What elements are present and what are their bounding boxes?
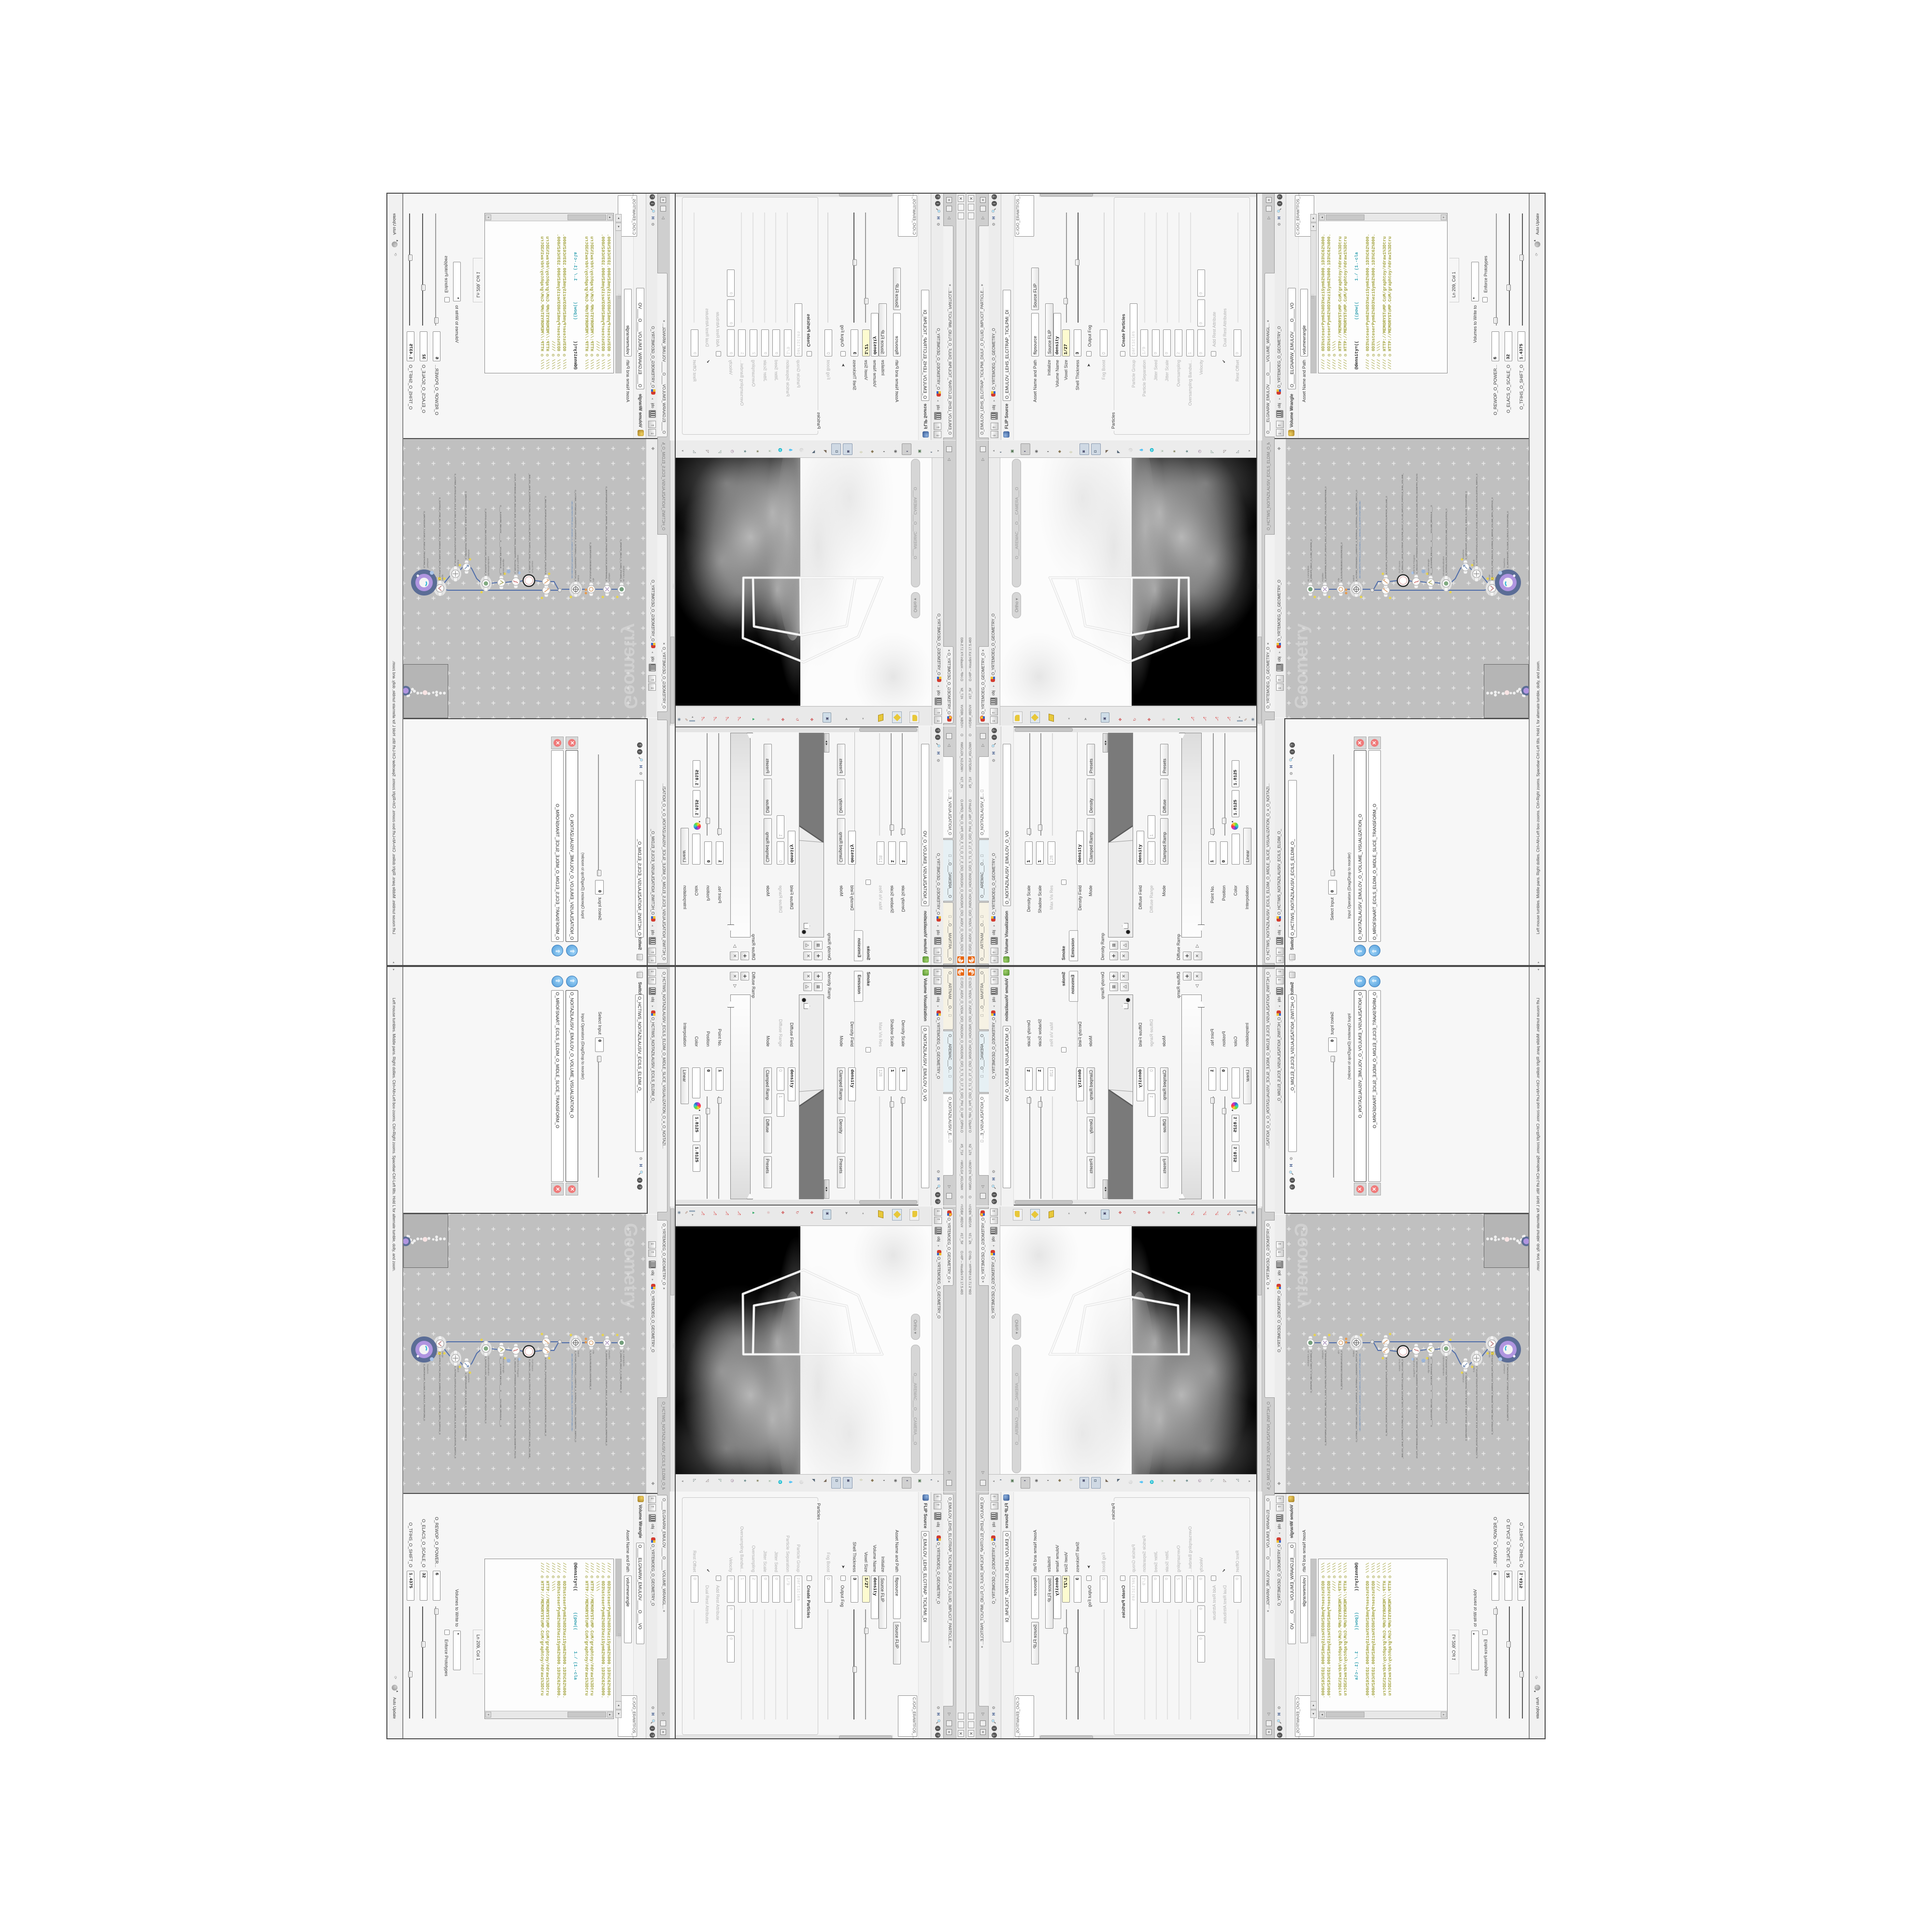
svg-text:O_EMULOV_LEHS_ELCITRAP_TICILPM: O_EMULOV_LEHS_ELCITRAP_TICILPMI_DIULF_O_… [1401, 473, 1404, 573]
svg-text:Geometry: Geometry [620, 624, 640, 709]
svg-text:O_HCTIWS_NOITAZILAUSIV_ECILS_E: O_HCTIWS_NOITAZILAUSIV_ECILS_ELDIM_O_MID… [1476, 473, 1478, 566]
svg-text:O____ELGNARW_EMULOV____O______: O____ELGNARW_EMULOV____O______VOLUME_WRA… [499, 505, 502, 575]
svg-text:an_CubeSphere: an_CubeSphere [1307, 566, 1309, 582]
svg-text:O_MROFSNART_TLUSER_O_RESULT_TR: O_MROFSNART_TLUSER_O_RESULT_TRANSFORM_O [423, 1364, 426, 1421]
svg-text:O_EMARFERIW_NOGYLOP_EREHPS_EBU: O_EMARFERIW_NOGYLOP_EREHPS_EBUC_O_CUBE_S… [605, 1350, 608, 1446]
svg-text:O_N,DUSLRBUBGBO,GENURBO(B)_O: O_N,DUSLRBUBGBO,GENURBO(B)_O [1340, 542, 1343, 582]
svg-text:Transform: Transform [426, 1364, 429, 1374]
svg-text:O_EREHPS_EBUC_O_CUBE_SPHERE_O: O_EREHPS_EBUC_O_CUBE_SPHERE_O [620, 1350, 622, 1393]
svg-text:Volume Wrangle: Volume Wrangle [502, 1357, 505, 1373]
svg-text:O_EMARFERIW_NOGYLOP_EREHPS_EBU: O_EMARFERIW_NOGYLOP_EREHPS_EBUC_O_CUBE_S… [1324, 486, 1327, 582]
svg-text:Geometry: Geometry [620, 1223, 640, 1308]
svg-text:Transform: Transform [468, 1373, 470, 1383]
svg-text:Geometry: Geometry [1292, 1223, 1312, 1308]
svg-text:O_EREHPS_EBUC_O_CUBE_SPHERE_O: O_EREHPS_EBUC_O_CUBE_SPHERE_O [1310, 539, 1312, 582]
svg-text:O_EMULOV_LEHS_ELCITRAP_TICILPM: O_EMULOV_LEHS_ELCITRAP_TICILPMI_DIULF_O_… [528, 473, 531, 573]
svg-text:Switch: Switch [577, 1350, 580, 1357]
svg-text:O_MROFSNART_ECILS_ELDIM_O_MIDL: O_MROFSNART_ECILS_ELDIM_O_MIDLE_SLICE_TR… [1465, 491, 1467, 559]
svg-text:O_E..BUDLFOKUEFIL_PUFFIN(GEO)D: O_E..BUDLFOKUEFIL_PUFFIN(GEO)DFEGEID(IG)… [1385, 496, 1388, 583]
svg-text:O_SNOGILOP_YRTEMOEG_MORF_EMULO: O_SNOGILOP_YRTEMOEG_MORF_EMULOV_BDV_O_VD… [514, 473, 516, 574]
svg-text:Merge: Merge [441, 1351, 444, 1358]
svg-text:File: File [592, 1350, 595, 1354]
svg-text:O_NOITAZILAUSIV_EMULOV_O/CO(VO: O_NOITAZILAUSIV_EMULOV_O/CO(VOLUME_VIS)U… [484, 1356, 487, 1423]
svg-text:O_HCTIWS_YRTEMOEG_LANRETXE_O_I: O_HCTIWS_YRTEMOEG_LANRETXE_O_INTERNAL_EX… [574, 490, 577, 582]
svg-text:O_NOITAZILAUSIV_EMULOV_O/CO(VO: O_NOITAZILAUSIV_EMULOV_O/CO(VOLUME_VIS)U… [1445, 1356, 1448, 1423]
svg-text:O_ECAFRUS_HTIW_EMULOV_EGREM_O_: O_ECAFRUS_HTIW_EMULOV_EGREM_O_MERGE_VOLU… [1491, 1351, 1493, 1435]
svg-text:Transform: Transform [426, 558, 429, 568]
svg-text:Geometry: Geometry [1292, 624, 1312, 709]
svg-text:FLIP Source: FLIP Source [531, 1359, 534, 1371]
svg-text:Transform: Transform [468, 549, 470, 559]
svg-text:an_CubeSphere: an_CubeSphere [1307, 1350, 1309, 1366]
svg-text:O_SNOGILOP_YRTEMOEG_MORF_EMULO: O_SNOGILOP_YRTEMOEG_MORF_EMULOV_BDV_O_VD… [1416, 473, 1418, 574]
svg-text:VolumeVisualization: VolumeVisualization [1442, 1356, 1445, 1376]
svg-text:O_N,DUSLRBUBGBO,GENURBO(B)_O: O_N,DUSLRBUBGBO,GENURBO(B)_O [1340, 1350, 1343, 1390]
svg-text:Volume Wrangle: Volume Wrangle [1427, 559, 1430, 575]
svg-text:FLIP Source: FLIP Source [1398, 1359, 1401, 1371]
svg-text:JBO.M03,PETS,TRPOLS.O_5SUNEG_O: JBO.M03,PETS,TRPOLS.O_5SUNEG_O_GENUS5_O.… [571, 1353, 573, 1431]
svg-text:O_SNOGILOP_YRTEMOEG_MORF_EMULO: O_SNOGILOP_YRTEMOEG_MORF_EMULOV_BDV_O_VD… [1416, 1358, 1418, 1459]
svg-text:O_ECAFRUS_HTIW_EMULOV_EGREM_O_: O_ECAFRUS_HTIW_EMULOV_EGREM_O_MERGE_VOLU… [439, 497, 441, 581]
svg-text:O_HCTIWS_YRTEMOEG_LANRETXE_O_I: O_HCTIWS_YRTEMOEG_LANRETXE_O_INTERNAL_EX… [1355, 1350, 1358, 1442]
svg-text:VDB from Polygons: VDB from Polygons [1413, 554, 1415, 574]
svg-text:O_EMULOV_LEHS_ELCITRAP_TICILPM: O_EMULOV_LEHS_ELCITRAP_TICILPMI_DIULF_O_… [528, 1359, 531, 1459]
svg-text:Switch: Switch [1352, 575, 1355, 582]
svg-text:PolyWire: PolyWire [1321, 1350, 1324, 1359]
svg-text:O_EMARFERIW_NOGYLOP_EREHPS_EBU: O_EMARFERIW_NOGYLOP_EREHPS_EBUC_O_CUBE_S… [1324, 1350, 1327, 1446]
svg-text:PolyWire: PolyWire [1321, 573, 1324, 582]
svg-text:Switch: Switch [457, 1366, 459, 1373]
svg-text:File: File [1337, 578, 1340, 582]
svg-text:Switch: Switch [1352, 1350, 1355, 1357]
svg-text:Volume Wrangle: Volume Wrangle [1427, 1357, 1430, 1373]
svg-text:VDB from Polygons: VDB from Polygons [1413, 1358, 1415, 1378]
svg-text:O_MROFSNART_TLUSER_O_RESULT_TR: O_MROFSNART_TLUSER_O_RESULT_TRANSFORM_O [1506, 511, 1509, 568]
svg-text:O_SNOGILOP_YRTEMOEG_MORF_EMULO: O_SNOGILOP_YRTEMOEG_MORF_EMULOV_BDV_O_VD… [514, 1358, 516, 1459]
svg-text:VolumeVisualization: VolumeVisualization [1442, 556, 1445, 576]
svg-text:VolumeVisualization: VolumeVisualization [487, 556, 490, 576]
svg-text:O_HCTIWS_NOITAZILAUSIV_ECILS_E: O_HCTIWS_NOITAZILAUSIV_ECILS_ELDIM_O_MID… [454, 473, 456, 566]
svg-text:O____ELGNARW_EMULOV____O______: O____ELGNARW_EMULOV____O______VOLUME_WRA… [1430, 505, 1433, 575]
svg-text:O_MROFSNART_TLUSER_O_RESULT_TR: O_MROFSNART_TLUSER_O_RESULT_TRANSFORM_O [1506, 1364, 1509, 1421]
svg-text:JBO.M03,PETS,TRPOLS.O_5SUNEG_O: JBO.M03,PETS,TRPOLS.O_5SUNEG_O_GENUS5_O.… [1359, 501, 1361, 579]
svg-text:O____ELGNARW_EMULOV____O______: O____ELGNARW_EMULOV____O______VOLUME_WRA… [1430, 1357, 1433, 1427]
svg-text:Merge: Merge [1488, 574, 1491, 581]
svg-text:O_NOITAZILAUSIV_EMULOV_O/CO(VO: O_NOITAZILAUSIV_EMULOV_O/CO(VOLUME_VIS)U… [1445, 509, 1448, 576]
svg-text:O_EREHPS_EBUC_O_CUBE_SPHERE_O: O_EREHPS_EBUC_O_CUBE_SPHERE_O [1310, 1350, 1312, 1393]
svg-text:PolyWire: PolyWire [608, 573, 611, 582]
svg-text:JBO.M03,PETS,TRPOLS.O_5SUNEG_O: JBO.M03,PETS,TRPOLS.O_5SUNEG_O_GENUS5_O.… [571, 501, 573, 579]
svg-text:O_HCTIWS_NOITAZILAUSIV_ECILS_E: O_HCTIWS_NOITAZILAUSIV_ECILS_ELDIM_O_MID… [454, 1366, 456, 1459]
svg-text:Switch: Switch [457, 559, 459, 566]
svg-text:O_HCTIWS_NOITAZILAUSIV_ECILS_E: O_HCTIWS_NOITAZILAUSIV_ECILS_ELDIM_O_MID… [1476, 1366, 1478, 1459]
svg-text:O_NOITAZILAUSIV_EMULOV_O/CO(VO: O_NOITAZILAUSIV_EMULOV_O/CO(VOLUME_VIS)U… [484, 509, 487, 576]
svg-text:O_EREHPS_EBUC_O_CUBE_SPHERE_O: O_EREHPS_EBUC_O_CUBE_SPHERE_O [620, 539, 622, 582]
svg-text:Transform: Transform [1462, 549, 1464, 559]
svg-text:Switch: Switch [1473, 1366, 1475, 1373]
svg-text:Merge: Merge [1488, 1351, 1491, 1358]
svg-text:an_CubeSphere: an_CubeSphere [623, 566, 625, 582]
svg-text:O_MROFSNART_ECILS_ELDIM_O_MIDL: O_MROFSNART_ECILS_ELDIM_O_MIDLE_SLICE_TR… [465, 1373, 467, 1441]
svg-text:Transform: Transform [1503, 1364, 1506, 1374]
svg-text:File: File [592, 578, 595, 582]
svg-text:O____ELGNARW_EMULOV____O______: O____ELGNARW_EMULOV____O______VOLUME_WRA… [499, 1357, 502, 1427]
svg-text:O_ECAFRUS_HTIW_EMULOV_EGREM_O_: O_ECAFRUS_HTIW_EMULOV_EGREM_O_MERGE_VOLU… [439, 1351, 441, 1435]
svg-text:O_HCTIWS_YRTEMOEG_LANRETXE_O_I: O_HCTIWS_YRTEMOEG_LANRETXE_O_INTERNAL_EX… [574, 1350, 577, 1442]
svg-text:VDB from Polygons: VDB from Polygons [517, 1358, 519, 1378]
svg-text:O_N,DUSLRBUBGBO,GENURBO(B)_O: O_N,DUSLRBUBGBO,GENURBO(B)_O [589, 542, 592, 582]
svg-text:O_E..BUDLFOKUEFIL_PUFFIN(GEO)D: O_E..BUDLFOKUEFIL_PUFFIN(GEO)DFEGEID(IG)… [544, 1349, 547, 1436]
svg-text:O_ECAFRUS_HTIW_EMULOV_EGREM_O_: O_ECAFRUS_HTIW_EMULOV_EGREM_O_MERGE_VOLU… [1491, 497, 1493, 581]
svg-text:Volume Wrangle: Volume Wrangle [502, 559, 505, 575]
svg-text:Transform: Transform [1462, 1373, 1464, 1383]
svg-text:Switch: Switch [577, 575, 580, 582]
svg-text:O_MROFSNART_ECILS_ELDIM_O_MIDL: O_MROFSNART_ECILS_ELDIM_O_MIDLE_SLICE_TR… [1465, 1373, 1467, 1441]
svg-text:Switch: Switch [1473, 559, 1475, 566]
svg-text:an_CubeSphere: an_CubeSphere [623, 1350, 625, 1366]
svg-text:FLIP Source: FLIP Source [1398, 561, 1401, 573]
svg-text:O_E..BUDLFOKUEFIL_PUFFIN(GEO)D: O_E..BUDLFOKUEFIL_PUFFIN(GEO)DFEGEID(IG)… [544, 496, 547, 583]
svg-text:O_MROFSNART_ECILS_ELDIM_O_MIDL: O_MROFSNART_ECILS_ELDIM_O_MIDLE_SLICE_TR… [465, 491, 467, 559]
svg-text:FLIP Source: FLIP Source [531, 561, 534, 573]
svg-text:O_N,DUSLRBUBGBO,GENURBO(B)_O: O_N,DUSLRBUBGBO,GENURBO(B)_O [589, 1350, 592, 1390]
svg-text:PolyWire: PolyWire [608, 1350, 611, 1359]
svg-text:Transform: Transform [1503, 558, 1506, 568]
svg-text:VDB from Polygons: VDB from Polygons [517, 554, 519, 574]
svg-text:JBO.M03,PETS,TRPOLS.O_5SUNEG_O: JBO.M03,PETS,TRPOLS.O_5SUNEG_O_GENUS5_O.… [1359, 1353, 1361, 1431]
svg-text:O_MROFSNART_TLUSER_O_RESULT_TR: O_MROFSNART_TLUSER_O_RESULT_TRANSFORM_O [423, 511, 426, 568]
svg-text:File: File [1337, 1350, 1340, 1354]
svg-text:O_EMARFERIW_NOGYLOP_EREHPS_EBU: O_EMARFERIW_NOGYLOP_EREHPS_EBUC_O_CUBE_S… [605, 486, 608, 582]
svg-text:VolumeVisualization: VolumeVisualization [487, 1356, 490, 1376]
svg-text:O_EMULOV_LEHS_ELCITRAP_TICILPM: O_EMULOV_LEHS_ELCITRAP_TICILPMI_DIULF_O_… [1401, 1359, 1404, 1459]
svg-text:O_HCTIWS_YRTEMOEG_LANRETXE_O_I: O_HCTIWS_YRTEMOEG_LANRETXE_O_INTERNAL_EX… [1355, 490, 1358, 582]
svg-text:Merge: Merge [441, 574, 444, 581]
svg-text:O_E..BUDLFOKUEFIL_PUFFIN(GEO)D: O_E..BUDLFOKUEFIL_PUFFIN(GEO)DFEGEID(IG)… [1385, 1349, 1388, 1436]
